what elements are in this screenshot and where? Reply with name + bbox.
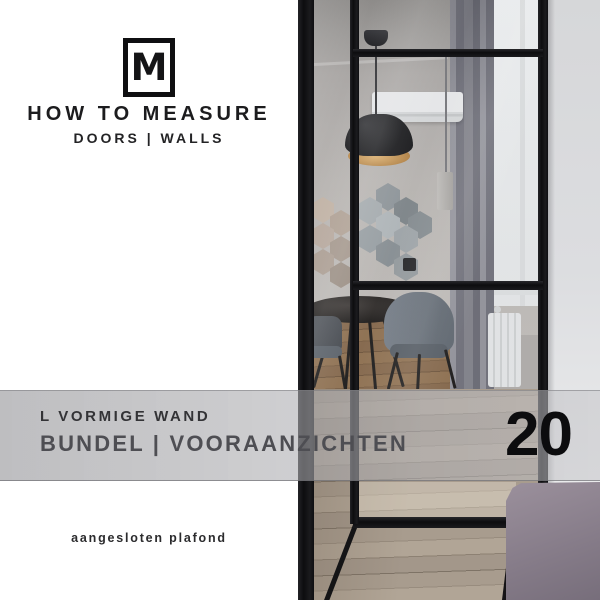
brand-subtitle: DOORS | WALLS [0, 130, 298, 146]
cover-page: M HOW TO MEASURE DOORS | WALLS aangeslot… [0, 0, 600, 600]
interior-photo [298, 0, 600, 600]
light-switch [403, 258, 416, 271]
window-mullion [520, 0, 525, 306]
chair-back [384, 292, 454, 352]
banner-subtitle: L VORMIGE WAND [40, 408, 210, 425]
radiator-knob [494, 306, 501, 313]
frame-transom-top [353, 49, 543, 57]
banner-title: BUNDEL | VOORAANZICHTEN [40, 431, 408, 457]
brand-panel: M HOW TO MEASURE DOORS | WALLS aangeslot… [0, 0, 298, 600]
concrete-pendant [437, 172, 453, 210]
page-number: 20 [505, 399, 572, 470]
frame-stile-left [298, 0, 314, 600]
frame-transom-middle [353, 281, 543, 290]
pendant-cord [445, 57, 447, 173]
bottom-rail [353, 517, 516, 528]
lamp-canopy [364, 30, 388, 46]
brand-title: HOW TO MEASURE [0, 103, 298, 126]
floor-through-glass [356, 482, 516, 520]
logo-letter: M [131, 49, 168, 86]
title-banner: L VORMIGE WAND BUNDEL | VOORAANZICHTEN 2… [0, 390, 600, 481]
footer-note: aangesloten plafond [0, 531, 298, 545]
brand-logo: M [123, 38, 175, 97]
bed-mattress [506, 482, 600, 600]
radiator [488, 313, 521, 387]
